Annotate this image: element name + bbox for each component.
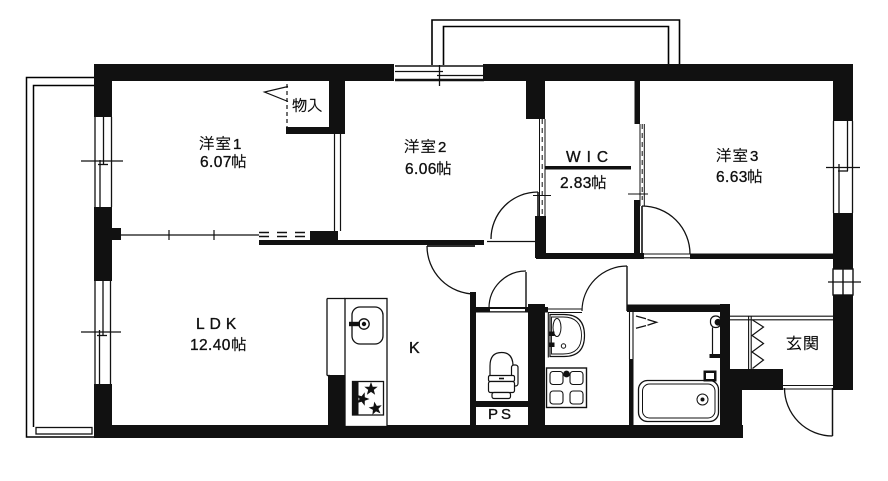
svg-text:WIC: WIC bbox=[566, 149, 614, 166]
svg-text:K: K bbox=[409, 340, 420, 357]
svg-text:LDK: LDK bbox=[196, 316, 241, 333]
svg-text:3: 3 bbox=[750, 148, 758, 165]
svg-text:2: 2 bbox=[438, 139, 446, 156]
svg-text:6.63: 6.63 bbox=[716, 169, 748, 186]
svg-text:2.83: 2.83 bbox=[560, 175, 592, 192]
svg-text:PS: PS bbox=[488, 406, 514, 423]
svg-text:6.07: 6.07 bbox=[200, 154, 232, 171]
svg-text:12.40: 12.40 bbox=[190, 337, 231, 354]
svg-text:1: 1 bbox=[233, 136, 241, 153]
svg-text:6.06: 6.06 bbox=[405, 161, 437, 178]
